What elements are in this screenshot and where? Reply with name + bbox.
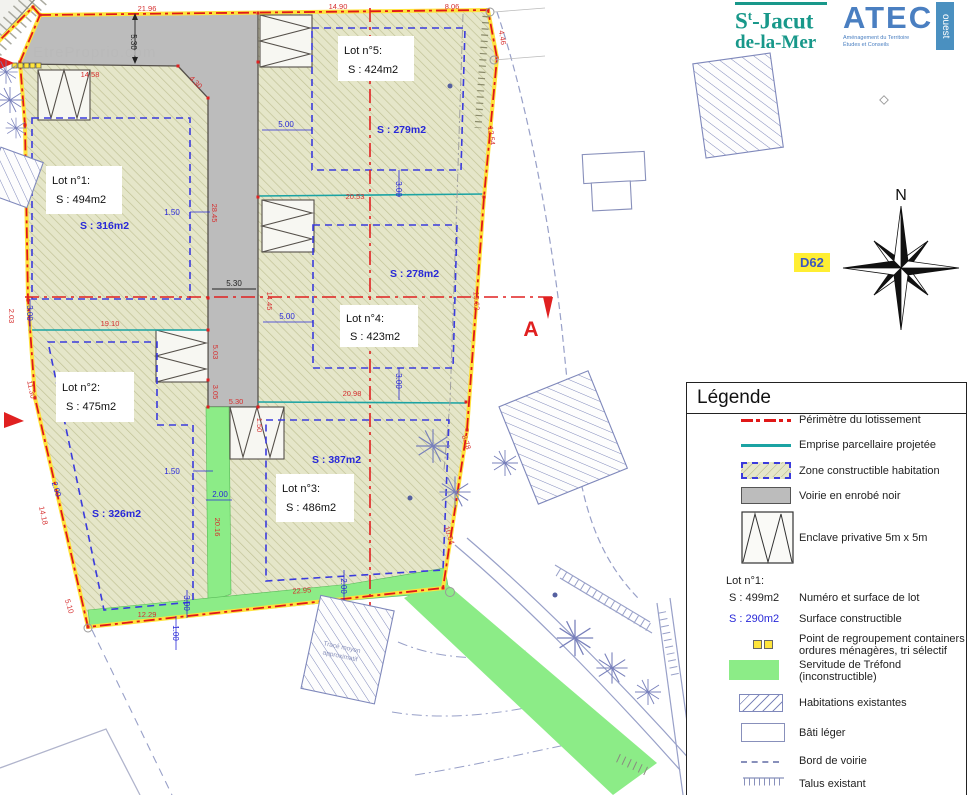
lot5-surface: S : 424m2 <box>348 64 398 76</box>
dimension-label: 5.30 <box>229 397 244 406</box>
dimension-label: 12.29 <box>138 610 157 619</box>
dimension-label: 3.00 <box>394 181 403 197</box>
containers-point <box>12 63 41 68</box>
bati-leger-2 <box>591 181 631 211</box>
dimension-label: 20.98 <box>343 389 362 398</box>
lot3-name: Lot n°3: <box>282 483 320 495</box>
dimension-label: 20.16 <box>213 518 222 537</box>
logo-rule <box>735 2 827 5</box>
lot4-surface: S : 423m2 <box>350 331 400 343</box>
dimension-label: 5.10 <box>63 598 76 615</box>
legend-label: Voirie en enrobé noir <box>799 490 901 502</box>
lot-areas <box>20 10 497 627</box>
containers-symbol <box>753 640 775 652</box>
dimension-label: 5.00 <box>279 312 295 321</box>
dimension-label: 1.50 <box>164 467 180 476</box>
lot3-surface: S : 486m2 <box>286 502 336 514</box>
dimension-label: 3.00 <box>182 595 191 611</box>
lot3-constructible: S : 387m2 <box>312 454 361 466</box>
dimension-label: 14.58 <box>81 70 100 79</box>
legend-label: Bord de voirie <box>799 755 867 767</box>
lot1-constructible: S : 316m2 <box>80 220 129 232</box>
legend-label: Bâti léger <box>799 727 845 739</box>
dimension-label: 2.03 <box>7 309 16 324</box>
legend-label: Surface constructible <box>799 613 902 625</box>
legend-panel: Légende Périmètre du lotissement Emprise… <box>686 382 967 795</box>
legend-label: Enclave privative 5m x 5m <box>799 532 927 544</box>
dimension-label: 19.62 <box>472 291 482 310</box>
enclave-lot5 <box>260 15 312 67</box>
dimension-label: 5.30 <box>226 279 242 288</box>
lot5-name: Lot n°5: <box>344 45 382 57</box>
lot4-name: Lot n°4: <box>346 313 384 325</box>
legend-label: Emprise parcellaire projetée <box>799 439 936 451</box>
dimension-label: 1.00 <box>171 625 180 641</box>
servitude-strip-diagonal <box>404 579 657 795</box>
dimension-label: 3.05 <box>211 385 220 400</box>
site-plan-page: { "watermark": "EtreProprio.com", "logos… <box>0 0 969 795</box>
perimeter-symbol <box>741 419 791 422</box>
zone-symbol <box>741 462 791 479</box>
road-d62-tag: D62 <box>794 253 830 272</box>
legend-label: Habitations existantes <box>799 697 907 709</box>
enclave-symbol <box>741 511 795 565</box>
dimension-label: 2.00 <box>212 490 228 499</box>
atec-vertical-label: ouest <box>936 2 954 50</box>
dimension-label: 3.00 <box>394 373 403 389</box>
dimension-label: 1.50 <box>164 208 180 217</box>
enclave-lot3 <box>230 407 284 459</box>
legend-label: Numéro et surface de lot <box>799 592 919 604</box>
legend-title: Légende <box>687 383 966 414</box>
compass-rose: N <box>843 187 959 330</box>
legend-lot-surface: S : 499m2 <box>729 592 779 604</box>
dimension-label: 22.95 <box>292 585 311 595</box>
talus-symbol <box>741 775 787 791</box>
dimension-label: 4.46 <box>497 30 508 46</box>
lot5-constructible: S : 279m2 <box>377 124 426 136</box>
dimension-label: 2.00 <box>339 578 348 594</box>
legend-constructible-value: S : 290m2 <box>729 613 779 625</box>
lot4-constructible: S : 278m2 <box>390 268 439 280</box>
dimension-label: 21.96 <box>138 4 157 13</box>
building-hatched-topright <box>693 53 783 158</box>
enclave-lot2 <box>156 330 208 382</box>
lot2-surface: S : 475m2 <box>66 401 116 413</box>
dimension-label: 1.50 <box>255 418 264 433</box>
legend-lot-name: Lot n°1: <box>726 575 764 587</box>
building-hatched-right <box>499 371 627 504</box>
dimension-label: 20.53 <box>346 192 365 201</box>
dimension-label: 5.00 <box>278 120 294 129</box>
legend-label: Périmètre du lotissement <box>799 414 921 426</box>
legend-label: Zone constructible habitation <box>799 465 940 477</box>
dimension-label: 5.03 <box>211 345 220 360</box>
small-marker <box>880 96 888 104</box>
commune-name-line2: de-la-Mer <box>735 33 827 52</box>
voirie-symbol <box>741 487 791 504</box>
enclave-lot4 <box>262 200 314 252</box>
emprise-symbol <box>741 444 791 447</box>
commune-logo: St-Jacut de-la-Mer <box>735 2 827 52</box>
dimension-label: 8.06 <box>445 2 460 11</box>
dimension-label: 28.45 <box>210 204 219 223</box>
section-a-label: A <box>523 318 538 341</box>
lot1-surface: S : 494m2 <box>56 194 106 206</box>
dimension-label: 14.45 <box>265 292 274 311</box>
servitude-symbol <box>729 660 779 680</box>
legend-label: Talus existant <box>799 778 866 790</box>
lot1-name: Lot n°1: <box>52 175 90 187</box>
dimension-label: 19.10 <box>101 319 120 328</box>
dimension-label: 14.18 <box>37 505 50 525</box>
section-a-marker <box>543 297 553 319</box>
boundary-arrow-left <box>4 412 24 428</box>
watermark: EtreProprio.com <box>33 44 156 61</box>
lot2-name: Lot n°2: <box>62 382 100 394</box>
dimension-label: 3.00 <box>25 305 34 321</box>
legend-label: Servitude de Tréfond(inconstructible) <box>799 660 901 683</box>
atec-logo: ATEC ouest Aménagement du TerritoireÉtud… <box>843 2 963 49</box>
legend-label: Point de regroupement containersordures … <box>799 634 965 657</box>
bord-symbol <box>741 761 779 763</box>
servitude-strip-vertical <box>206 407 231 602</box>
north-label: N <box>895 187 907 204</box>
lot2-constructible: S : 326m2 <box>92 508 141 520</box>
dimension-label: 14.90 <box>329 2 348 11</box>
habitations-symbol <box>739 694 783 712</box>
bati-symbol <box>741 723 785 742</box>
commune-name-line1: St-Jacut <box>735 9 827 33</box>
bati-leger-1 <box>582 151 645 183</box>
